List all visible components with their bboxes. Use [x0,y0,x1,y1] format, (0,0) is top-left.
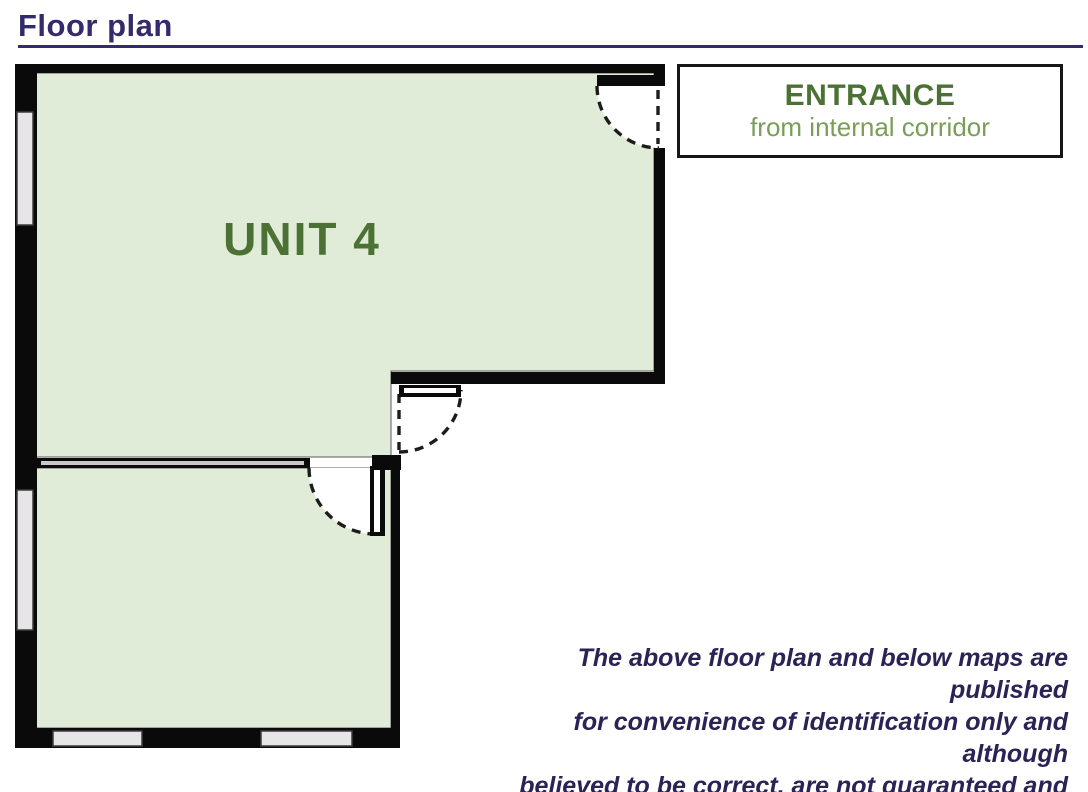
bottom-window-left [53,731,142,746]
left-window-lower [17,490,33,630]
middle-door [399,385,461,452]
entrance-label-box: ENTRANCE from internal corridor [677,64,1063,158]
unit-4-label: UNIT 4 [212,212,392,266]
floor-plan-page: Floor plan [0,0,1088,792]
disclaimer-line: The above floor plan and below maps are … [508,642,1068,706]
entrance-door-leaf [597,75,661,86]
bottom-window-right [261,731,352,746]
divider-wall-core [41,461,304,465]
top-wall [15,64,665,73]
entrance-subtitle: from internal corridor [750,113,990,143]
right-wall-lower [654,148,665,384]
disclaimer-text: The above floor plan and below maps are … [508,642,1068,792]
extension-bottom-wall [391,372,665,384]
disclaimer-line: for convenience of identification only a… [508,706,1068,770]
left-window-upper [17,112,33,225]
disclaimer-line: believed to be correct, are not guarante… [508,770,1068,792]
middle-door-leaf-core [404,388,456,393]
lower-door-leaf-core [374,470,380,532]
lower-room-right-wall [391,458,400,748]
entrance-title: ENTRANCE [785,79,956,114]
